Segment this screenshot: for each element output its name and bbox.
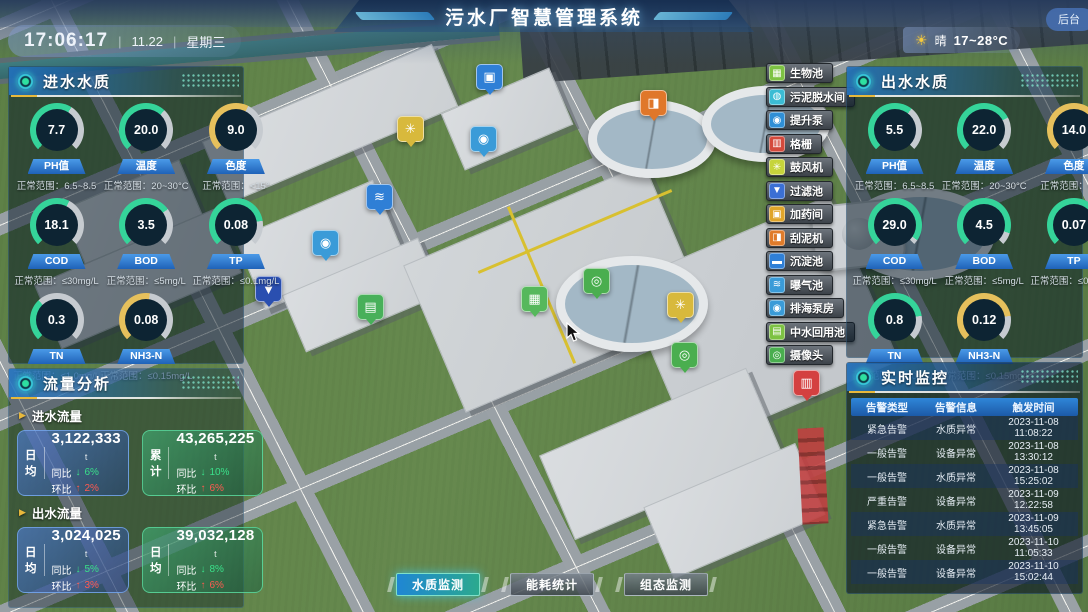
sludge-dewater-icon: ◍	[769, 89, 785, 105]
gauge-ring: 0.07	[1047, 198, 1088, 252]
gauge-range: 正常范围：6.5~8.5	[855, 178, 934, 192]
gauge-value: 0.3	[36, 299, 78, 341]
grille-marker-icon[interactable]: ▥	[793, 370, 820, 396]
clock-chip: 17:06:17 | 11.22 | 星期三	[8, 25, 241, 57]
flow-card-累计: 累计43,265,225 t同比↓10%环比↑6%	[142, 430, 263, 496]
gauge-range: 正常范围：≤5mg/L	[107, 273, 186, 287]
outlet-gauge-grid: 5.5PH值正常范围：6.5~8.522.0温度正常范围：20~30°C14.0…	[847, 97, 1082, 382]
aeration-icon: ≋	[769, 277, 785, 293]
reuse-pool-marker-icon[interactable]: ▤	[357, 294, 384, 320]
alarm-type: 紧急告警	[851, 517, 923, 532]
filter-pool-icon: ▼	[769, 183, 785, 199]
flow-card-body: 43,265,225 t同比↓10%环比↑6%	[176, 430, 254, 496]
compare-value: 2%	[85, 483, 99, 494]
arrow-up-icon: ↑	[200, 483, 205, 494]
compare-key: 同比	[176, 465, 196, 480]
gauge-range: 正常范围：≤5mg/L	[945, 273, 1024, 287]
marker-tail	[321, 255, 331, 266]
flow-card-unit: t	[214, 549, 217, 559]
admin-button[interactable]: 后台	[1046, 8, 1088, 31]
gauge-label: NH3-N	[117, 349, 175, 364]
clock-separator: |	[118, 34, 121, 49]
compare-key: 环比	[52, 481, 72, 496]
gauge-label: PH值	[866, 159, 924, 174]
gauge-value: 5.5	[874, 109, 916, 151]
legend-label: 中水回用池	[790, 324, 845, 340]
flow-compare-line: 环比↑6%	[176, 481, 254, 496]
alarm-row[interactable]: 一般告警设备异常2023-11-10 11:05:33	[851, 536, 1078, 560]
alarm-type: 严重告警	[851, 493, 923, 508]
flow-section-label: ▶出水流量	[19, 503, 243, 522]
gauge-range: 正常范围：≤0.1mg/L	[192, 273, 279, 287]
flow-compare-line: 同比↓6%	[52, 465, 121, 480]
legend-button-加药间[interactable]: ▣加药间	[766, 204, 833, 224]
legend-button-排海泵房[interactable]: ◉排海泵房	[766, 298, 844, 318]
weather-chip: ☀ 晴 17~28°C	[903, 27, 1020, 53]
gauge-ring: 14.0	[1047, 103, 1088, 157]
header-underline	[11, 397, 241, 399]
alarm-type: 紧急告警	[851, 421, 923, 436]
alarm-time: 2023-11-10 11:05:33	[989, 537, 1078, 559]
legend-button-鼓风机[interactable]: ✳鼓风机	[766, 157, 833, 177]
lift-pump-icon: ◉	[769, 112, 785, 128]
gauge-ring: 18.1	[30, 198, 84, 252]
gauge-ring: 22.0	[957, 103, 1011, 157]
marker-tail	[802, 395, 812, 406]
fan-marker-icon[interactable]: ✳	[667, 292, 694, 318]
outlet-quality-panel: 出水水质 5.5PH值正常范围：6.5~8.522.0温度正常范围：20~30°…	[846, 66, 1083, 358]
clock-separator: |	[173, 34, 176, 49]
pump-marker-icon[interactable]: ◉	[470, 126, 497, 152]
gauge-value: 9.0	[215, 109, 257, 151]
gauge-ring: 20.0	[119, 103, 173, 157]
col-alarm-info: 告警信息	[923, 400, 989, 415]
arrow-up-icon: ↑	[76, 483, 81, 494]
gauge-label: COD	[28, 254, 86, 269]
alarm-time: 2023-11-09 13:45:05	[989, 513, 1078, 535]
legend-label: 沉淀池	[790, 253, 823, 269]
gauge-色度: 9.0色度正常范围：<15°	[192, 103, 279, 192]
gauge-COD: 18.1COD正常范围：≤30mg/L	[13, 198, 100, 287]
gauge-label: 色度	[1045, 159, 1088, 174]
gauge-value: 0.07	[1053, 204, 1088, 246]
legend-label: 格栅	[790, 136, 812, 152]
legend-button-生物池[interactable]: ▦生物池	[766, 63, 833, 83]
gauge-value: 7.7	[36, 109, 78, 151]
alarm-row[interactable]: 一般告警设备异常2023-11-08 13:30:12	[851, 440, 1078, 464]
alarm-info: 水质异常	[923, 421, 989, 436]
marker-tail	[649, 115, 659, 126]
gauge-range: 正常范围：20~30°C	[104, 178, 189, 192]
alarm-row[interactable]: 紧急告警水质异常2023-11-08 11:08:22	[851, 416, 1078, 440]
gauge-PH值: 7.7PH值正常范围：6.5~8.5	[13, 103, 100, 192]
tab-水质监测[interactable]: 水质监测	[396, 573, 480, 596]
marker-tail	[592, 293, 602, 304]
gauge-value: 22.0	[963, 109, 1005, 151]
gauge-ring: 4.5	[957, 198, 1011, 252]
arrow-down-icon: ↓	[76, 467, 81, 478]
alarm-time: 2023-11-09 12:22:58	[989, 489, 1078, 511]
panel-header: 出水水质	[847, 67, 1082, 95]
sedimentation-marker-icon[interactable]: ▣	[476, 64, 503, 90]
gauge-label: 温度	[117, 159, 175, 174]
flow-card-body: 3,122,333 t同比↓6%环比↑2%	[52, 430, 121, 496]
title-wing-left	[355, 12, 436, 20]
flow-card-tag: 日均	[25, 447, 45, 479]
gauge-PH值: 5.5PH值正常范围：6.5~8.5	[851, 103, 938, 192]
legend-button-污泥脱水间[interactable]: ◍污泥脱水间	[766, 87, 855, 107]
flow-card-value: 43,265,225 t	[176, 430, 254, 464]
clock-date: 11.22	[131, 34, 163, 49]
alarm-row[interactable]: 紧急告警水质异常2023-11-09 13:45:05	[851, 512, 1078, 536]
flow-analysis-panel: 流量分析 ▶进水流量日均3,122,333 t同比↓6%环比↑2%累计43,26…	[8, 368, 244, 608]
gauge-ring: 7.7	[30, 103, 84, 157]
marker-tail	[676, 317, 686, 328]
clock-weekday: 星期三	[186, 32, 225, 51]
legend-label: 摄像头	[790, 347, 823, 363]
gauge-label: TP	[207, 254, 265, 269]
legend-label: 加药间	[790, 206, 823, 222]
marker-tail	[264, 301, 274, 312]
gauge-value: 29.0	[874, 204, 916, 246]
inlet-quality-panel: 进水水质 7.7PH值正常范围：6.5~8.520.0温度正常范围：20~30°…	[8, 66, 244, 364]
legend-label: 曝气池	[790, 277, 823, 293]
gauge-value: 4.5	[963, 204, 1005, 246]
legend-button-曝气池[interactable]: ≋曝气池	[766, 275, 833, 295]
gauge-value: 0.8	[874, 299, 916, 341]
realtime-monitor-panel: 实时监控 告警类型 告警信息 触发时间 紧急告警水质异常2023-11-08 1…	[846, 362, 1083, 594]
camera-marker-icon[interactable]: ◎	[671, 342, 698, 368]
gauge-BOD: 3.5BOD正常范围：≤5mg/L	[100, 198, 192, 287]
alarm-row[interactable]: 严重告警设备异常2023-11-09 12:22:58	[851, 488, 1078, 512]
gauge-range: 正常范围：≤30mg/L	[852, 273, 936, 287]
flow-card-tag: 日均	[25, 544, 45, 576]
flow-card-unit: t	[214, 452, 217, 462]
legend-label: 刮泥机	[790, 230, 823, 246]
red-equipment-rack	[798, 427, 829, 524]
panel-header: 流量分析	[9, 369, 243, 397]
dashboard-stage: 污水厂智慧管理系统 17:06:17 | 11.22 | 星期三 ☀ 晴 17~…	[0, 0, 1088, 612]
sedimentation-icon: ▬	[769, 253, 785, 269]
gauge-label: BOD	[955, 254, 1013, 269]
blower-marker-icon[interactable]: ✳	[397, 116, 424, 142]
gauge-TP: 0.07TP正常范围：≤0.1mg/L	[1030, 198, 1088, 287]
tab-组态监测[interactable]: 组态监测	[624, 573, 708, 596]
panel-header-icon	[855, 73, 872, 90]
dosing-room-icon: ▣	[769, 206, 785, 222]
gauge-range: 正常范围：<15°	[202, 178, 269, 192]
page-title: 污水厂智慧管理系统	[445, 3, 643, 30]
gauge-range: 正常范围：20~30°C	[942, 178, 1027, 192]
gauge-温度: 20.0温度正常范围：20~30°C	[100, 103, 192, 192]
gauge-ring: 9.0	[209, 103, 263, 157]
scraper-marker-icon[interactable]: ◨	[640, 90, 667, 116]
alarm-time: 2023-11-08 15:25:02	[989, 465, 1078, 487]
panel-header-icon	[17, 73, 34, 90]
gauge-value: 20.0	[125, 109, 167, 151]
outlet-quality-title: 出水水质	[881, 71, 949, 92]
legend-label: 污泥脱水间	[790, 89, 845, 105]
marker-tail	[479, 151, 489, 162]
flow-card-日均: 日均3,122,333 t同比↓6%环比↑2%	[17, 430, 129, 496]
gauge-label: PH值	[28, 159, 86, 174]
gauge-value: 0.08	[125, 299, 167, 341]
legend-button-提升泵[interactable]: ◉提升泵	[766, 110, 833, 130]
gauge-range: 正常范围：<15°	[1040, 178, 1088, 192]
flow-card-value: 39,032,128 t	[176, 527, 254, 561]
gauge-温度: 22.0温度正常范围：20~30°C	[938, 103, 1030, 192]
blower-icon: ✳	[769, 159, 785, 175]
gauge-ring: 3.5	[119, 198, 173, 252]
triangle-bullet-icon: ▶	[19, 410, 26, 421]
alarm-type: 一般告警	[851, 541, 923, 556]
marker-tail	[485, 89, 495, 100]
legend-button-摄像头[interactable]: ◎摄像头	[766, 345, 833, 365]
alarm-info: 设备异常	[923, 541, 989, 556]
alarm-info: 设备异常	[923, 445, 989, 460]
flow-card-tag: 日均	[150, 544, 170, 576]
water-reuse-icon: ▤	[769, 324, 785, 340]
flow-section-text: 出水流量	[32, 503, 82, 522]
gauge-range: 正常范围：6.5~8.5	[17, 178, 96, 192]
legend-button-中水回用池[interactable]: ▤中水回用池	[766, 322, 855, 342]
title-wing-right	[653, 12, 734, 20]
header-dots-decoration	[181, 375, 239, 391]
panel-header-icon	[855, 369, 872, 386]
gauge-label: 色度	[207, 159, 265, 174]
alarm-table-body: 紧急告警水质异常2023-11-08 11:08:22一般告警设备异常2023-…	[847, 416, 1082, 584]
gauge-ring: 0.08	[119, 293, 173, 347]
gauge-range: 正常范围：≤30mg/L	[14, 273, 98, 287]
pump-marker-icon[interactable]: ◉	[312, 230, 339, 256]
flow-compare-line: 环比↑2%	[52, 481, 121, 496]
gauge-label: COD	[866, 254, 924, 269]
compare-value: 6%	[85, 467, 99, 478]
header-dots-decoration	[1020, 369, 1078, 385]
gauge-ring: 29.0	[868, 198, 922, 252]
marker-tail	[530, 311, 540, 322]
alarm-info: 设备异常	[923, 493, 989, 508]
gauge-value: 18.1	[36, 204, 78, 246]
gauge-label: TP	[1045, 254, 1088, 269]
flow-sections: ▶进水流量日均3,122,333 t同比↓6%环比↑2%累计43,265,225…	[9, 406, 243, 593]
panel-header-icon	[17, 375, 34, 392]
title-band: 污水厂智慧管理系统	[334, 0, 754, 32]
flow-section-label: ▶进水流量	[19, 406, 243, 425]
header-dots-decoration	[181, 73, 239, 89]
camera-marker-icon[interactable]: ◎	[583, 268, 610, 294]
marker-tail	[680, 367, 690, 378]
legend-button-刮泥机[interactable]: ◨刮泥机	[766, 228, 833, 248]
legend-button-格栅[interactable]: ▥格栅	[766, 134, 822, 154]
triangle-bullet-icon: ▶	[19, 507, 26, 518]
alarm-time: 2023-11-08 13:30:12	[989, 441, 1078, 463]
col-alarm-type: 告警类型	[851, 400, 923, 415]
bio-pool-marker-icon[interactable]: ▦	[521, 286, 548, 312]
panel-header: 实时监控	[847, 363, 1082, 391]
gauge-ring: 0.12	[957, 293, 1011, 347]
sun-icon: ☀	[915, 32, 928, 49]
tab-能耗统计[interactable]: 能耗统计	[510, 573, 594, 596]
weather-label: 晴	[935, 32, 947, 49]
arrow-down-icon: ↓	[200, 467, 205, 478]
flow-card-row: 日均3,122,333 t同比↓6%环比↑2%累计43,265,225 t同比↓…	[9, 430, 243, 496]
mud-scraper-icon: ◨	[769, 230, 785, 246]
flow-card-unit: t	[85, 549, 88, 559]
aeration-marker-icon[interactable]: ≋	[366, 184, 393, 210]
gauge-value: 0.12	[963, 299, 1005, 341]
marker-tail	[366, 319, 376, 330]
alarm-type: 一般告警	[851, 469, 923, 484]
alarm-info: 水质异常	[923, 469, 989, 484]
alarm-info: 水质异常	[923, 517, 989, 532]
gauge-ring: 5.5	[868, 103, 922, 157]
legend-label: 排海泵房	[790, 300, 834, 316]
gauge-ring: 0.08	[209, 198, 263, 252]
inlet-gauge-grid: 7.7PH值正常范围：6.5~8.520.0温度正常范围：20~30°C9.0色…	[9, 97, 243, 382]
marker-tail	[375, 209, 385, 220]
legend-label: 鼓风机	[790, 159, 823, 175]
camera-icon: ◎	[769, 347, 785, 363]
bio-pool-icon: ▦	[769, 65, 785, 81]
gauge-ring: 0.3	[30, 293, 84, 347]
flow-card-unit: t	[85, 452, 88, 462]
legend-label: 提升泵	[790, 112, 823, 128]
alarm-table-header: 告警类型 告警信息 触发时间	[851, 398, 1078, 416]
grille-icon: ▥	[769, 136, 785, 152]
sea-pump-icon: ◉	[769, 300, 785, 316]
gauge-value: 14.0	[1053, 109, 1088, 151]
gauge-ring: 0.8	[868, 293, 922, 347]
gauge-value: 0.08	[215, 204, 257, 246]
flow-card-tag: 累计	[150, 447, 170, 479]
compare-value: 10%	[209, 467, 229, 478]
gauge-BOD: 4.5BOD正常范围：≤5mg/L	[938, 198, 1030, 287]
bottom-tab-bar: 水质监测能耗统计组态监测	[8, 573, 1088, 596]
weather-temp: 17~28°C	[954, 33, 1009, 48]
realtime-monitor-title: 实时监控	[881, 367, 949, 388]
legend-button-过滤池[interactable]: ▼过滤池	[766, 181, 833, 201]
inlet-quality-title: 进水水质	[43, 71, 111, 92]
gauge-value: 3.5	[125, 204, 167, 246]
compare-value: 6%	[209, 483, 223, 494]
gauge-range: 正常范围：≤0.1mg/L	[1030, 273, 1088, 287]
gauge-色度: 14.0色度正常范围：<15°	[1030, 103, 1088, 192]
gauge-label: BOD	[117, 254, 175, 269]
gauge-label: TN	[28, 349, 86, 364]
compare-key: 同比	[52, 465, 72, 480]
alarm-type: 一般告警	[851, 445, 923, 460]
flow-compare-line: 同比↓10%	[176, 465, 254, 480]
header-dots-decoration	[1020, 73, 1078, 89]
compare-key: 环比	[176, 481, 196, 496]
flow-card-value: 3,122,333 t	[52, 430, 121, 464]
alarm-row[interactable]: 一般告警水质异常2023-11-08 15:25:02	[851, 464, 1078, 488]
col-trigger-time: 触发时间	[989, 400, 1078, 415]
header-underline	[849, 391, 1080, 393]
gauge-COD: 29.0COD正常范围：≤30mg/L	[851, 198, 938, 287]
alarm-time: 2023-11-08 11:08:22	[989, 417, 1078, 439]
flow-section-text: 进水流量	[32, 406, 82, 425]
legend-button-沉淀池[interactable]: ▬沉淀池	[766, 251, 833, 271]
facility-legend: ▦生物池◍污泥脱水间◉提升泵▥格栅✳鼓风机▼过滤池▣加药间◨刮泥机▬沉淀池≋曝气…	[766, 63, 855, 369]
flow-analysis-title: 流量分析	[43, 373, 111, 394]
gauge-TP: 0.08TP正常范围：≤0.1mg/L	[192, 198, 279, 287]
marker-tail	[406, 141, 416, 152]
flow-card-value: 3,024,025 t	[52, 527, 121, 561]
legend-label: 生物池	[790, 65, 823, 81]
legend-label: 过滤池	[790, 183, 823, 199]
clock-time: 17:06:17	[24, 30, 108, 52]
panel-header: 进水水质	[9, 67, 243, 95]
gauge-label: 温度	[955, 159, 1013, 174]
